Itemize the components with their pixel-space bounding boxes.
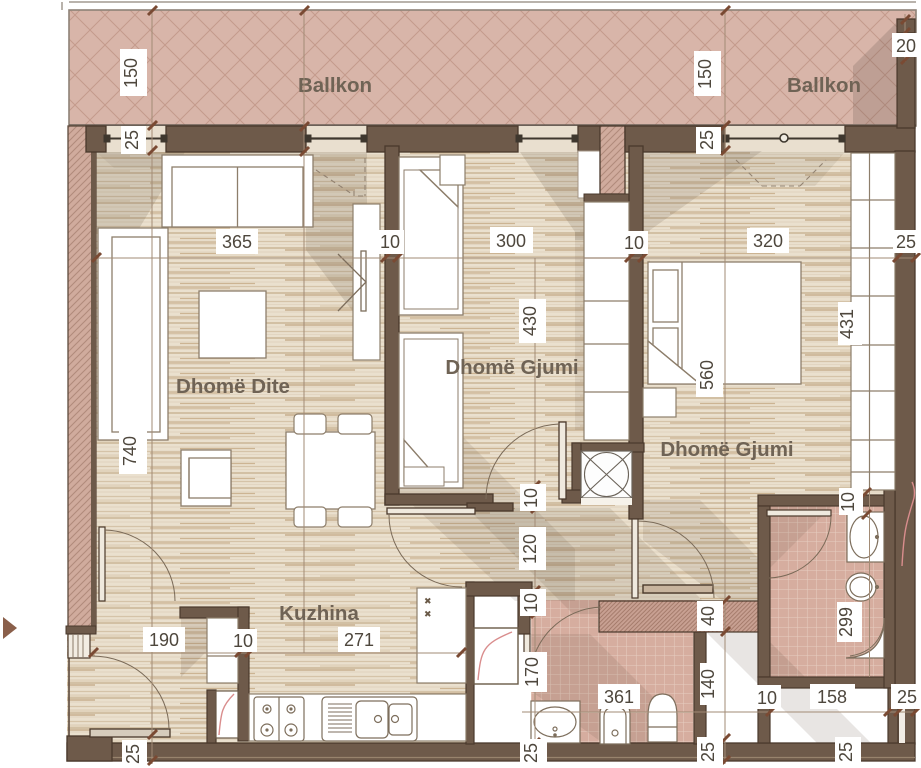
- svg-text:Kuzhina: Kuzhina: [279, 602, 359, 625]
- svg-text:10: 10: [380, 232, 400, 252]
- svg-text:150: 150: [695, 59, 715, 89]
- svg-text:740: 740: [120, 436, 140, 466]
- svg-text:10: 10: [233, 631, 253, 651]
- svg-text:Dhomë Dite: Dhomë Dite: [176, 375, 290, 398]
- svg-text:25: 25: [521, 743, 541, 763]
- svg-text:158: 158: [817, 687, 847, 707]
- svg-text:10: 10: [624, 233, 644, 253]
- svg-text:✖: ✖: [424, 609, 432, 619]
- svg-text:361: 361: [604, 687, 634, 707]
- svg-text:25: 25: [897, 687, 917, 707]
- svg-text:431: 431: [837, 309, 857, 339]
- svg-text:150: 150: [121, 58, 141, 88]
- svg-text:10: 10: [757, 688, 777, 708]
- svg-text:10: 10: [838, 492, 858, 512]
- svg-text:40: 40: [698, 606, 718, 626]
- svg-text:170: 170: [522, 657, 542, 687]
- svg-text:430: 430: [520, 306, 540, 336]
- svg-text:320: 320: [753, 231, 783, 251]
- svg-text:Dhomë Gjumi: Dhomë Gjumi: [445, 356, 578, 379]
- svg-text:Ballkon: Ballkon: [787, 74, 861, 97]
- svg-text:25: 25: [122, 130, 142, 150]
- svg-text:140: 140: [698, 669, 718, 699]
- svg-text:25: 25: [123, 744, 143, 764]
- svg-text:10: 10: [521, 593, 541, 613]
- svg-text:190: 190: [149, 630, 179, 650]
- svg-text:✖: ✖: [424, 596, 432, 606]
- svg-text:560: 560: [697, 360, 717, 390]
- svg-text:365: 365: [222, 232, 252, 252]
- svg-text:120: 120: [520, 534, 540, 564]
- svg-text:25: 25: [836, 742, 856, 762]
- svg-text:10: 10: [521, 488, 541, 508]
- svg-text:299: 299: [836, 607, 856, 637]
- svg-text:20: 20: [896, 36, 916, 56]
- svg-text:25: 25: [697, 130, 717, 150]
- svg-text:300: 300: [496, 231, 526, 251]
- svg-text:Dhomë Gjumi: Dhomë Gjumi: [660, 438, 793, 461]
- svg-text:Ballkon: Ballkon: [298, 74, 372, 97]
- svg-text:25: 25: [698, 742, 718, 762]
- svg-text:271: 271: [344, 630, 374, 650]
- svg-text:25: 25: [896, 232, 916, 252]
